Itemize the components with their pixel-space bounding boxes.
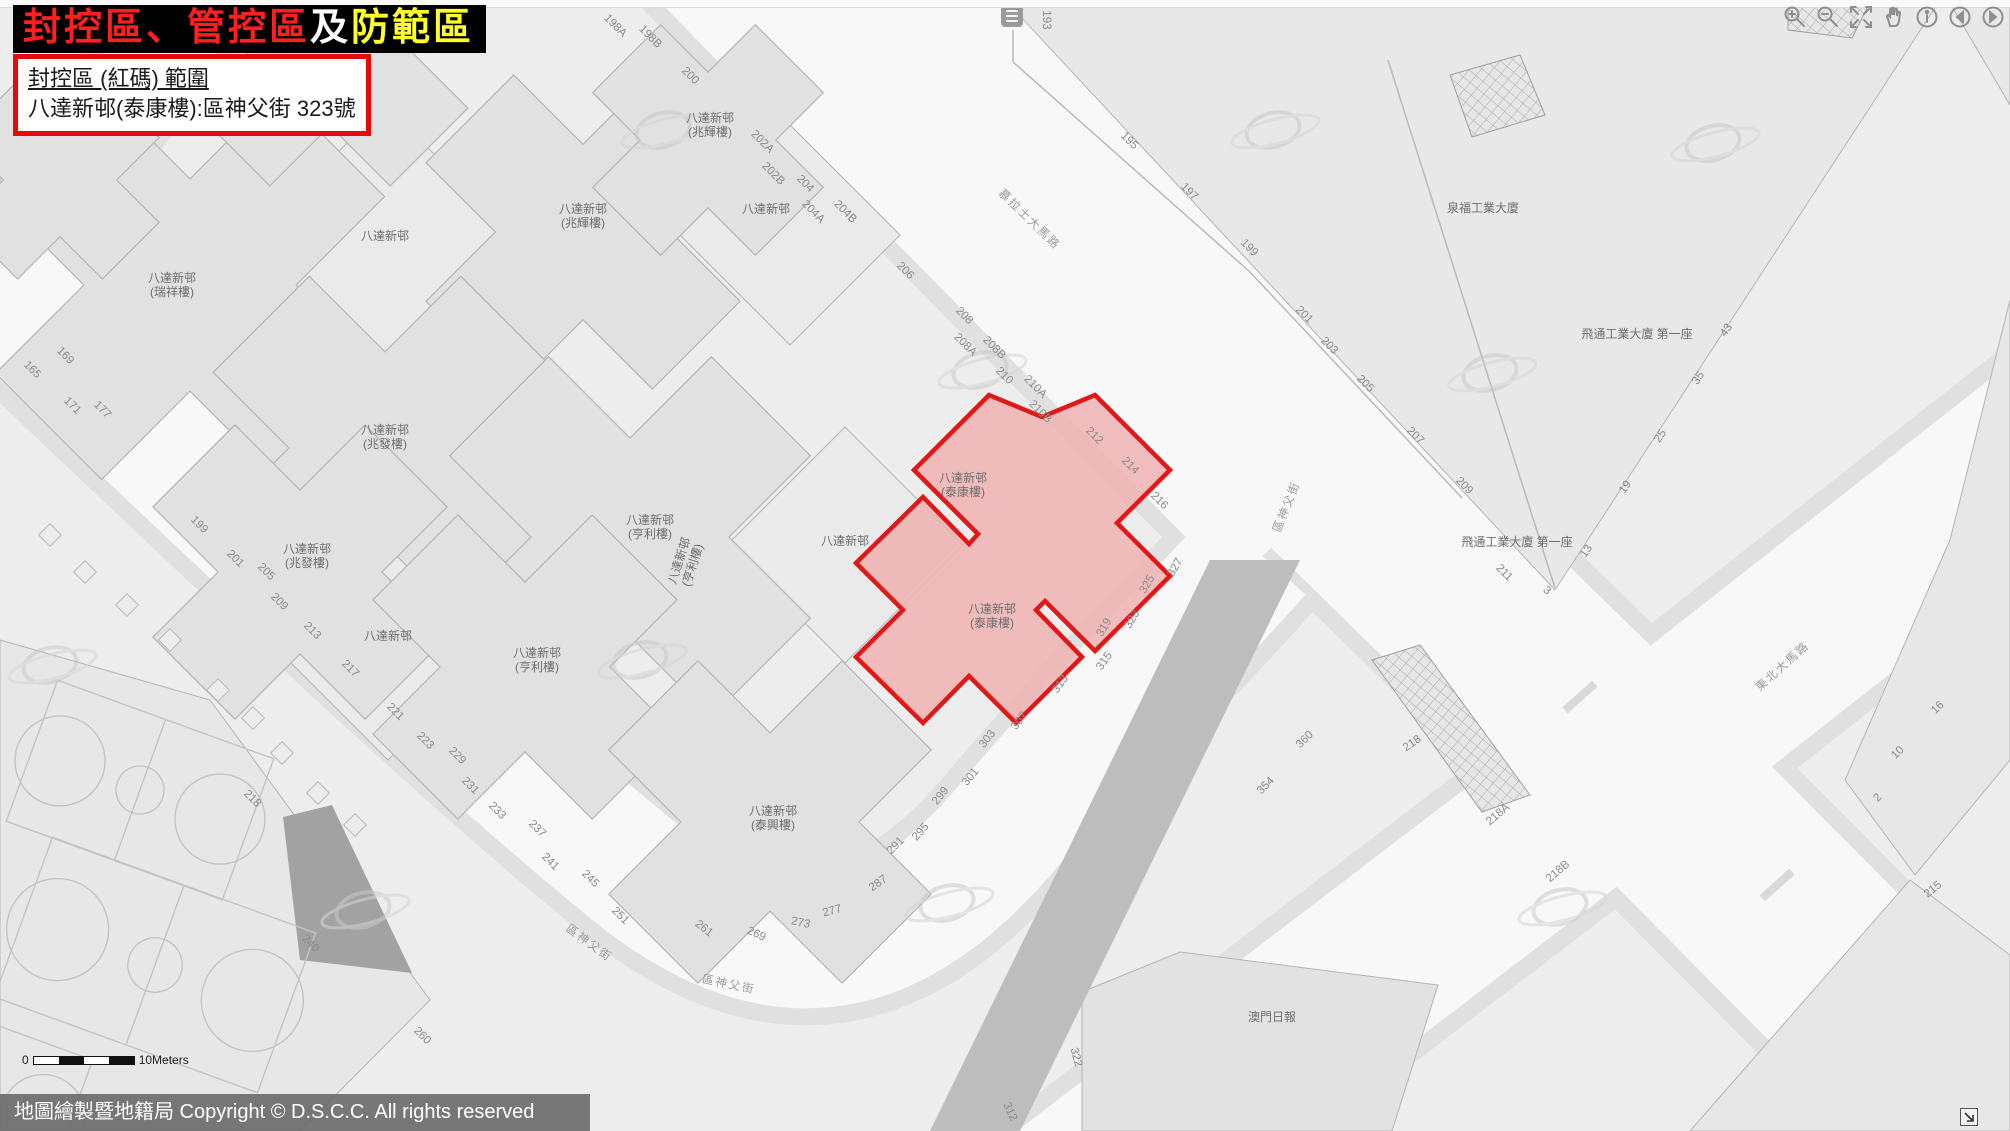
cadastral-map-canvas[interactable]: 1651691711771992012052092132172212232292… — [0, 0, 2010, 1131]
svg-text:八達新邨(亨利樓): 八達新邨(亨利樓) — [513, 645, 561, 674]
svg-text:八達新邨: 八達新邨 — [821, 533, 869, 548]
zoom-in-button[interactable] — [1781, 3, 1808, 30]
next-extent-button[interactable] — [1979, 3, 2006, 30]
expand-corner-button[interactable] — [1960, 1108, 1978, 1126]
title-yellow-part: 防範區 — [351, 7, 474, 49]
svg-text:澳門日報: 澳門日報 — [1248, 1010, 1296, 1024]
scale-zero: 0 — [22, 1053, 29, 1067]
copyright-bar: 地圖繪製暨地籍局 Copyright © D.S.C.C. All rights… — [0, 1094, 590, 1131]
svg-text:218: 218 — [1401, 733, 1424, 754]
scale-label: 10Meters — [139, 1053, 189, 1067]
title-red-part: 封控區、管控區 — [23, 7, 310, 49]
previous-extent-button[interactable] — [1946, 3, 1973, 30]
svg-text:八達新邨(兆輝樓): 八達新邨(兆輝樓) — [559, 201, 607, 230]
previous-extent-icon — [1947, 4, 1973, 30]
info-line-address: 八達新邨(泰康樓):區神父街 323號 — [28, 94, 356, 124]
title-white-part: 及 — [310, 7, 351, 49]
zoom-in-icon — [1782, 4, 1808, 30]
full-extent-button[interactable] — [1847, 3, 1874, 30]
svg-text:八達新邨(泰康樓): 八達新邨(泰康樓) — [939, 470, 987, 499]
svg-text:八達新邨(泰康樓): 八達新邨(泰康樓) — [968, 601, 1016, 630]
map-viewport[interactable]: 1651691711771992012052092132172212232292… — [0, 0, 2010, 1131]
identify-button[interactable] — [1913, 3, 1940, 30]
svg-text:360: 360 — [1294, 729, 1316, 751]
svg-text:飛通工業大廈 第一座: 飛通工業大廈 第一座 — [1461, 534, 1572, 549]
scale-bar: 0 10Meters — [22, 1053, 189, 1067]
pan-hand-button[interactable] — [1880, 3, 1907, 30]
svg-text:八達新邨: 八達新邨 — [742, 201, 790, 216]
next-extent-icon — [1980, 4, 2006, 30]
svg-text:八達新邨: 八達新邨 — [361, 228, 409, 243]
svg-text:八達新邨(兆發樓): 八達新邨(兆發樓) — [361, 422, 409, 451]
svg-text:飛通工業大廈 第一座: 飛通工業大廈 第一座 — [1581, 326, 1692, 341]
full-extent-icon — [1848, 4, 1874, 30]
svg-text:八達新邨: 八達新邨 — [364, 628, 412, 643]
svg-text:八達新邨(泰興樓): 八達新邨(泰興樓) — [749, 803, 797, 832]
zoom-out-icon — [1815, 4, 1841, 30]
info-line-scope: 封控區 (紅碼) 範圍 — [28, 64, 356, 94]
pan-hand-icon — [1881, 4, 1907, 30]
svg-text:193: 193 — [1040, 10, 1052, 29]
expand-arrow-icon — [1963, 1111, 1975, 1123]
svg-text:八達新邨(瑞祥樓): 八達新邨(瑞祥樓) — [148, 270, 196, 299]
page-title: 封控區、管控區及防範區 — [13, 5, 486, 53]
svg-text:八達新邨(兆輝樓): 八達新邨(兆輝樓) — [686, 110, 734, 139]
svg-text:354: 354 — [1255, 774, 1277, 796]
svg-text:泉福工業大廈: 泉福工業大廈 — [1447, 200, 1519, 215]
scale-bar-graphic — [33, 1056, 135, 1065]
svg-text:198A: 198A — [601, 12, 629, 40]
lockdown-info-box: 封控區 (紅碼) 範圍 八達新邨(泰康樓):區神父街 323號 — [13, 54, 371, 136]
svg-text:八達新邨(亨利樓): 八達新邨(亨利樓) — [626, 512, 674, 541]
identify-icon — [1914, 4, 1940, 30]
svg-text:八達新邨(兆發樓): 八達新邨(兆發樓) — [283, 541, 331, 570]
map-toolbar — [1781, 3, 2006, 30]
svg-text:260: 260 — [411, 1025, 433, 1047]
zoom-out-button[interactable] — [1814, 3, 1841, 30]
